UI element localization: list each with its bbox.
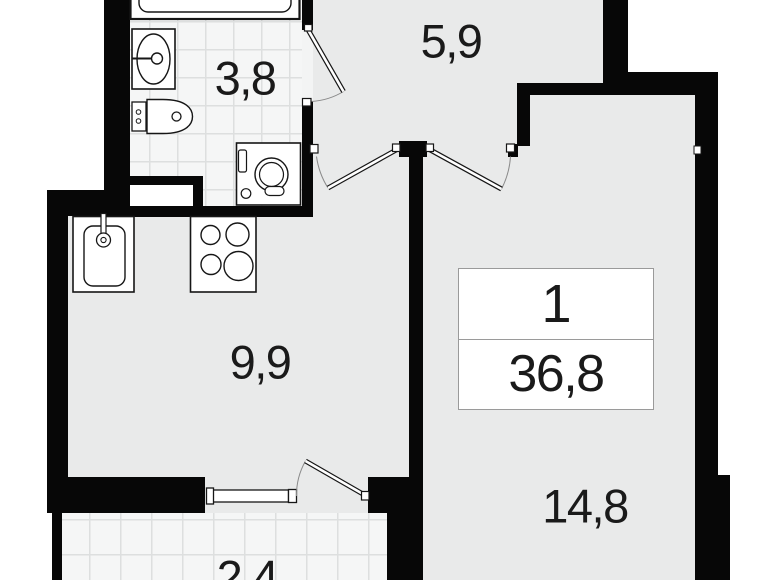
- balcony-door: [296, 461, 369, 500]
- kitchen-door: [310, 144, 400, 188]
- bathroom-door: [303, 25, 344, 107]
- bathtub: [131, 0, 300, 19]
- bathroom-area-label: 3,8: [215, 51, 276, 106]
- apartment-info-box: 1 36,8: [458, 268, 654, 410]
- toilet: [132, 100, 193, 134]
- floorplan: 3,8 5,9 9,9 14,8 2,4 1 36,8: [0, 0, 780, 580]
- kitchen-sink: [73, 214, 134, 293]
- kitchen-area-label: 9,9: [230, 335, 291, 390]
- fixtures-layer: [0, 0, 780, 580]
- balcony-area-label: 2,4: [217, 550, 278, 580]
- rooms-count: 1: [459, 269, 653, 340]
- stove: [191, 217, 257, 293]
- wall-latch-mark: [694, 146, 701, 154]
- window: [207, 488, 297, 504]
- total-area: 36,8: [459, 340, 653, 410]
- living-room-area-label: 14,8: [542, 479, 627, 534]
- living-room-door: [426, 144, 515, 189]
- washing-machine: [237, 143, 301, 205]
- hallway-area-label: 5,9: [421, 14, 482, 69]
- washbasin: [132, 29, 175, 89]
